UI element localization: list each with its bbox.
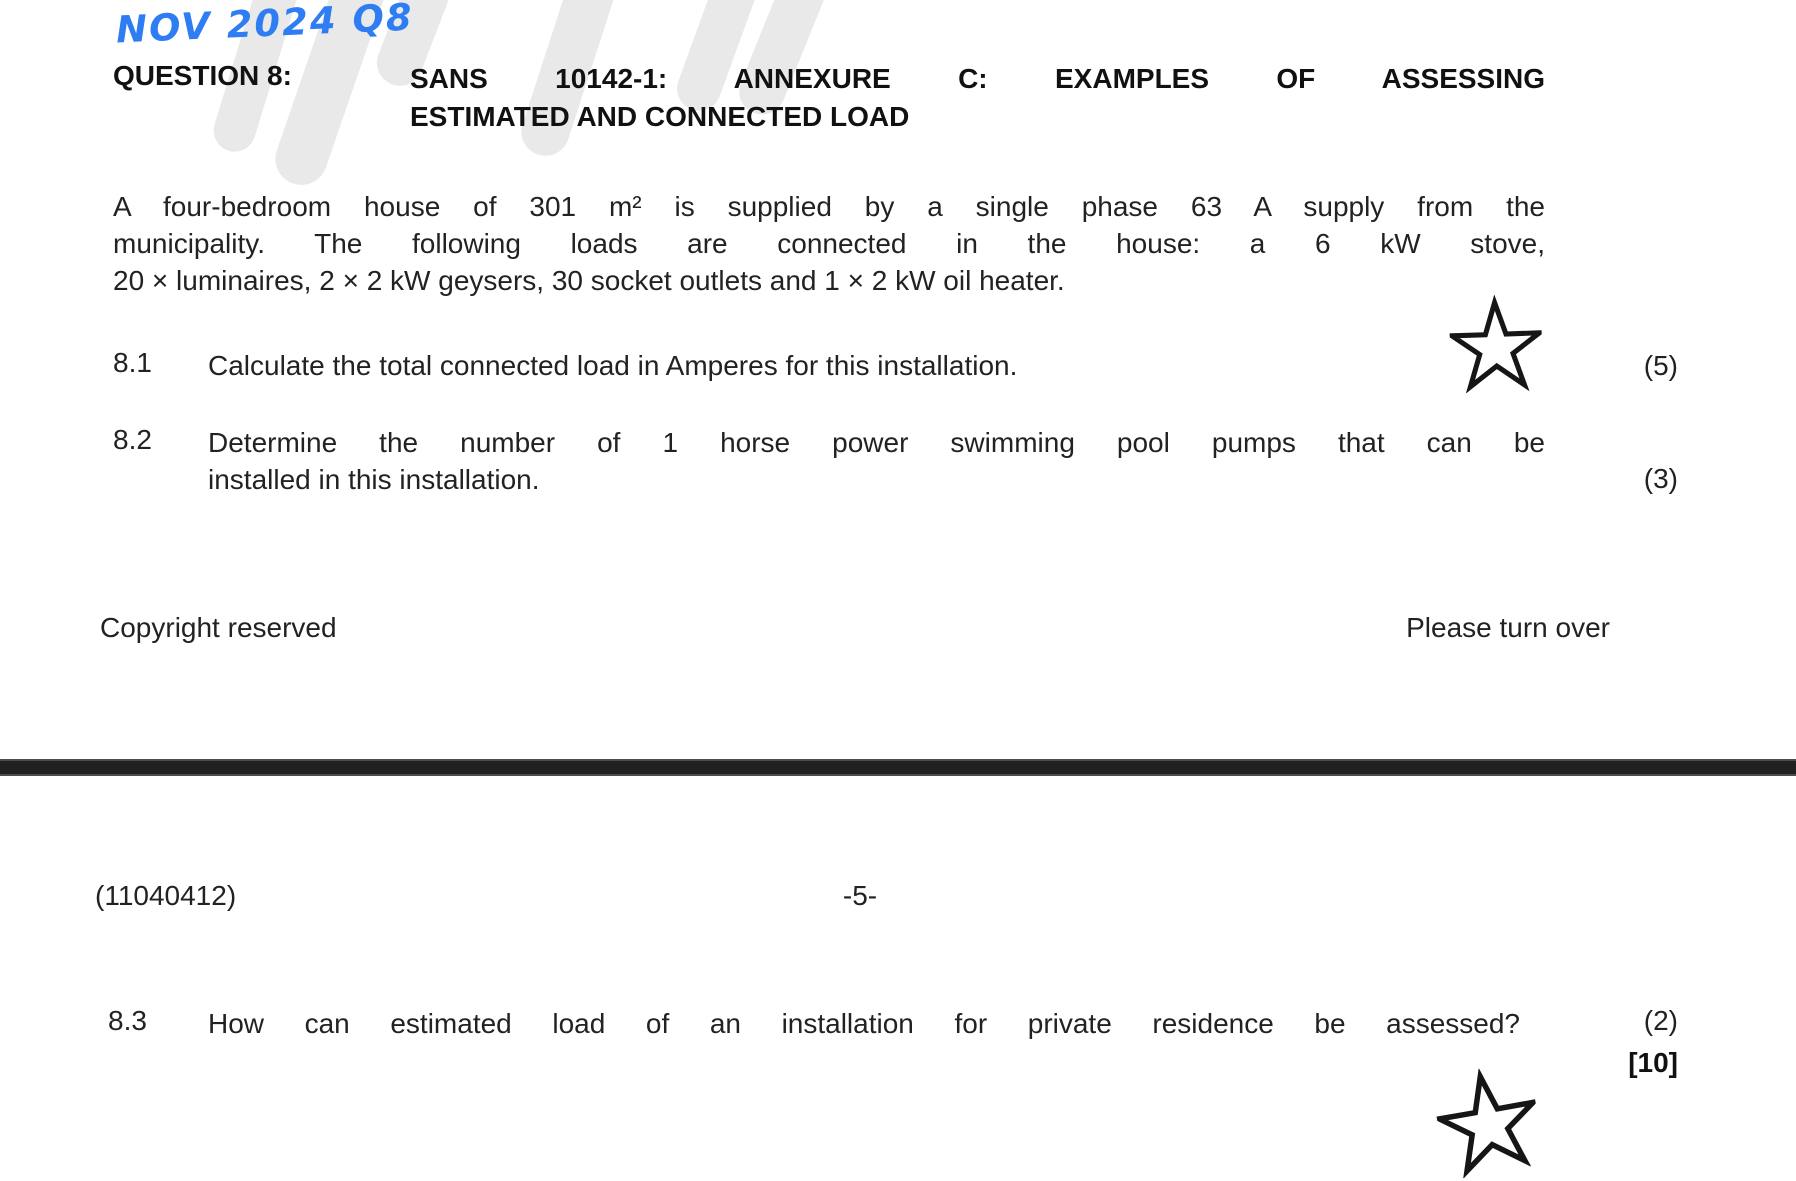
page-number: -5- xyxy=(780,880,940,912)
subquestion-8-2-marks: (3) xyxy=(1568,463,1678,495)
question-total-marks: [10] xyxy=(1568,1047,1678,1079)
subquestion-8-2-line1: Determine the number of 1 horse power sw… xyxy=(208,424,1545,461)
star-doodle-icon xyxy=(1430,1060,1547,1181)
intro-line3: 20 × luminaires, 2 × 2 kW geysers, 30 so… xyxy=(113,262,1545,299)
subquestion-8-2-number: 8.2 xyxy=(113,424,152,456)
handwritten-annotation: NOV 2024 Q8 xyxy=(115,0,414,51)
scanned-exam-page: NOV 2024 Q8 QUESTION 8: SANS 10142-1: AN… xyxy=(0,0,1796,1112)
question-intro-paragraph: A four-bedroom house of 301 m² is suppli… xyxy=(113,188,1545,299)
exam-paper-code: (11040412) xyxy=(95,880,236,912)
subquestion-8-2-text: Determine the number of 1 horse power sw… xyxy=(208,424,1545,498)
question-number-heading: QUESTION 8: xyxy=(113,60,292,92)
page-break-divider xyxy=(0,759,1796,776)
subquestion-8-3-text: How can estimated load of an installatio… xyxy=(208,1005,1520,1042)
question-title: SANS 10142-1: ANNEXURE C: EXAMPLES OF AS… xyxy=(410,60,1545,136)
subquestion-8-3-marks: (2) xyxy=(1568,1005,1678,1037)
intro-line2: municipality. The following loads are co… xyxy=(113,225,1545,262)
subquestion-8-2-line2: installed in this installation. xyxy=(208,461,1545,498)
intro-line1: A four-bedroom house of 301 m² is suppli… xyxy=(113,188,1545,225)
subquestion-8-1-marks: (5) xyxy=(1568,350,1678,382)
question-title-line2: ESTIMATED AND CONNECTED LOAD xyxy=(410,98,1545,136)
subquestion-8-1-text: Calculate the total connected load in Am… xyxy=(208,347,1545,384)
copyright-notice: Copyright reserved xyxy=(100,612,337,644)
please-turn-over-notice: Please turn over xyxy=(1300,612,1610,644)
question-title-line1: SANS 10142-1: ANNEXURE C: EXAMPLES OF AS… xyxy=(410,60,1545,98)
star-doodle-icon xyxy=(1448,293,1543,393)
subquestion-8-3-number: 8.3 xyxy=(108,1005,147,1037)
subquestion-8-1-number: 8.1 xyxy=(113,347,152,379)
